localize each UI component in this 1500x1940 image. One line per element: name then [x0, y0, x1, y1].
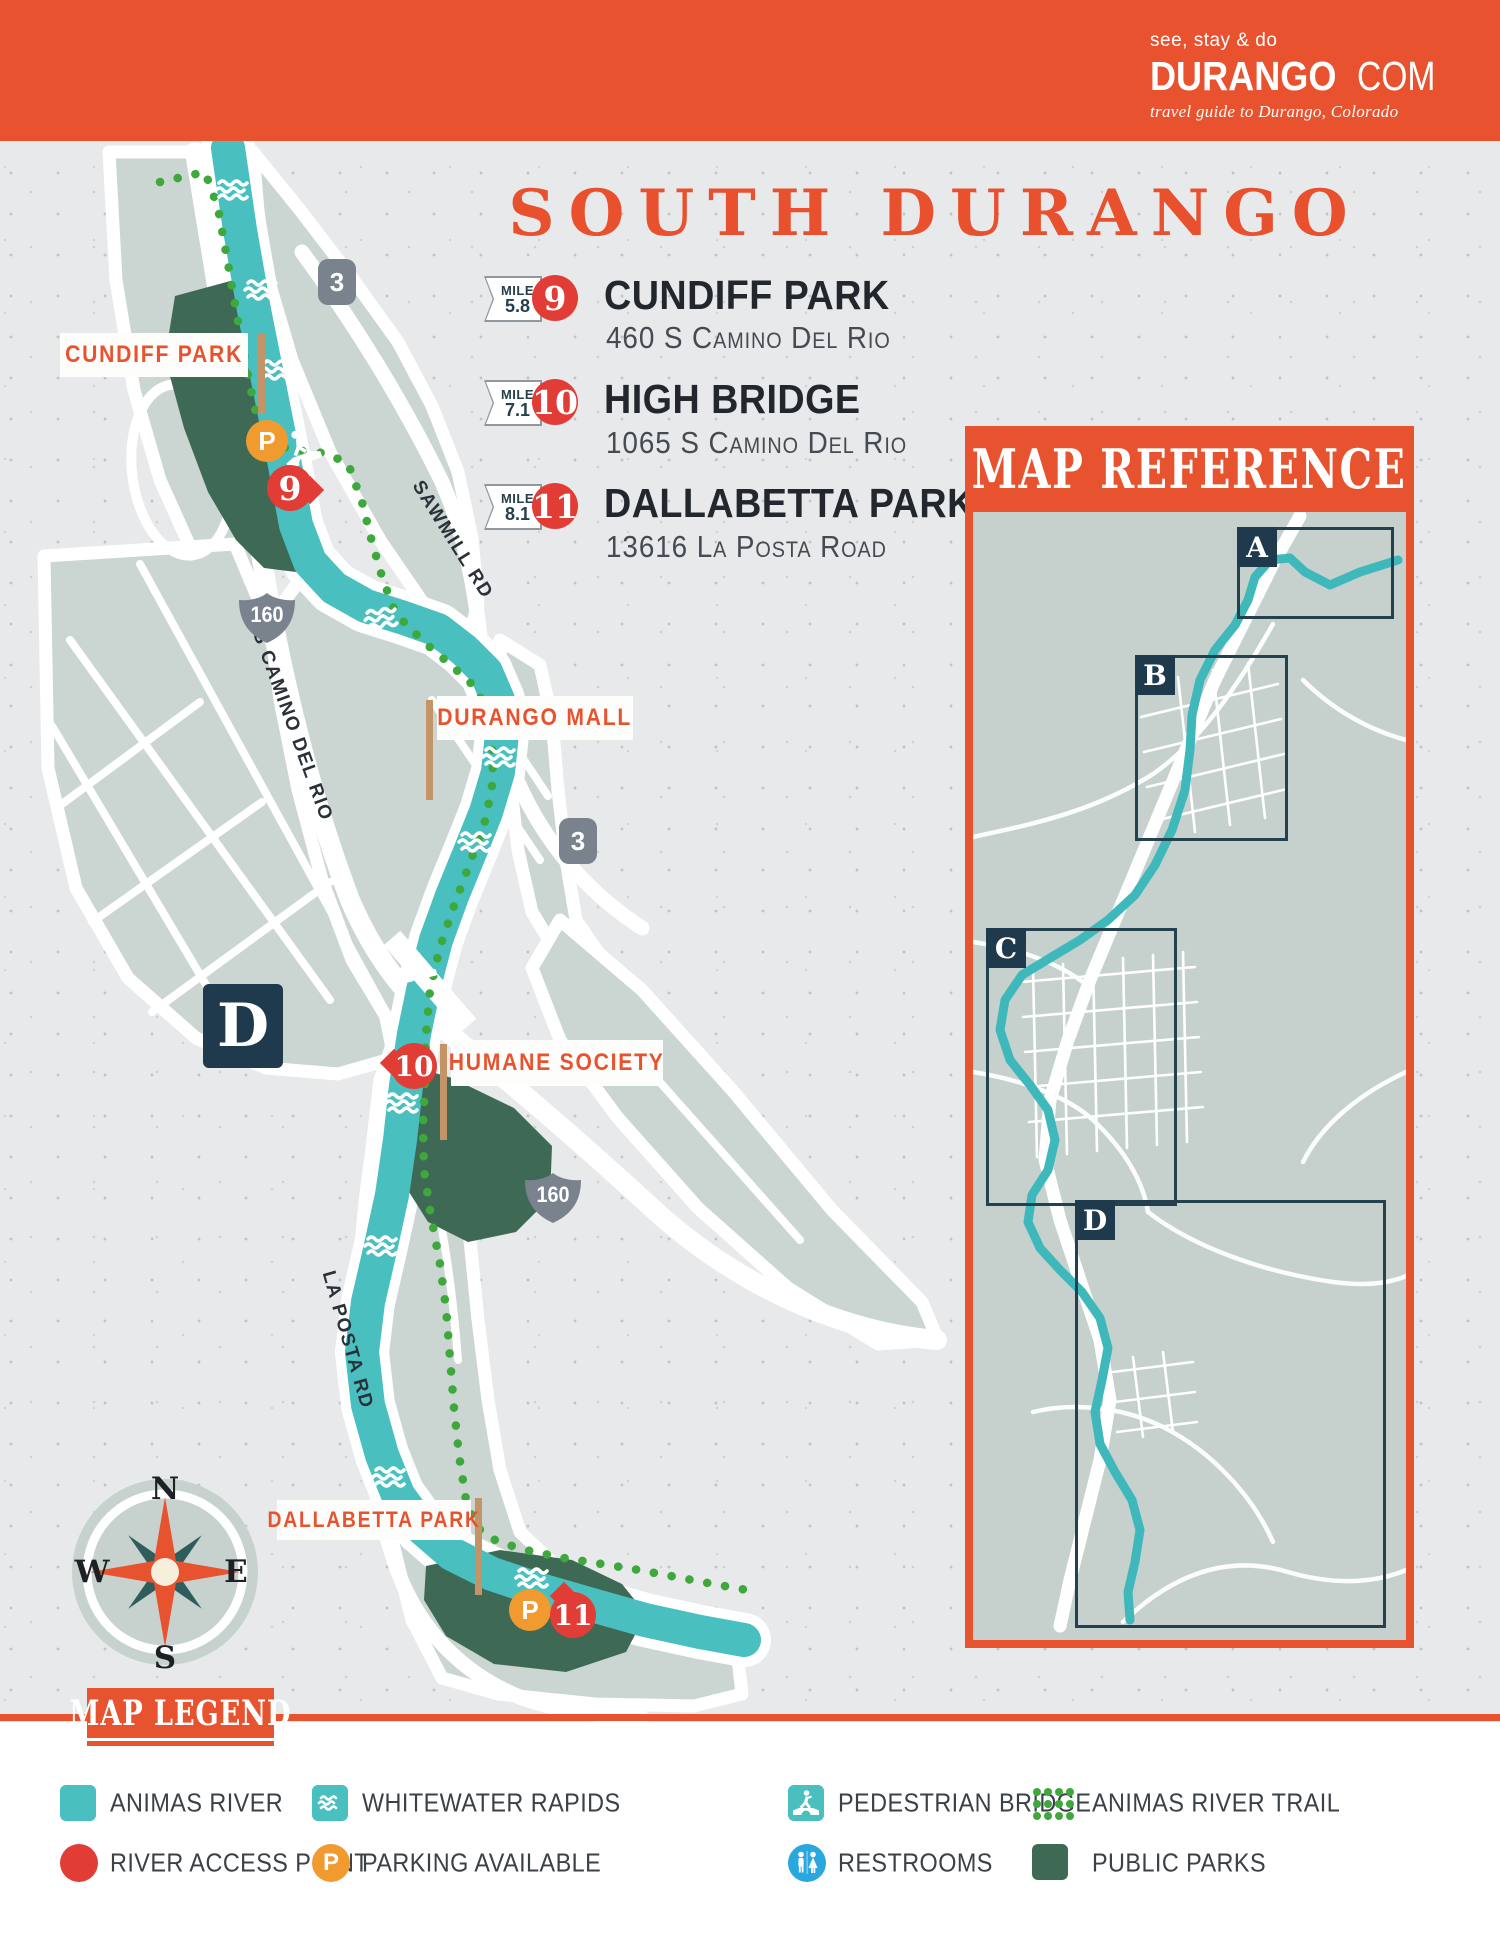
logo-subtitle: travel guide to Durango, Colorado — [1150, 102, 1412, 122]
page: ANIMAS RIVER ACCESS: DURANGO, CO see, st… — [0, 0, 1500, 1940]
map-legend-title: MAP LEGEND — [70, 1693, 292, 1741]
shield-number: 160 — [524, 1182, 582, 1208]
map-access-marker-11: 11 — [550, 1592, 596, 1638]
access-address-11: 13616 La Posta Road — [606, 529, 887, 565]
legend-label: PUBLIC PARKS — [1092, 1848, 1266, 1879]
restrooms-icon — [788, 1844, 826, 1882]
parking-available-icon: P — [312, 1844, 350, 1882]
map-access-marker-10: 10 — [391, 1043, 437, 1089]
access-address-9: 460 S Camino Del Rio — [606, 320, 891, 356]
legend-label: WHITEWATER RAPIDS — [362, 1788, 621, 1819]
label-durango-mall: DURANGO MALL — [437, 696, 633, 740]
map-access-marker-9: 9 — [267, 465, 313, 511]
access-name-11: DALLABETTA PARK — [604, 480, 975, 527]
river-access-point-icon — [60, 1844, 98, 1882]
legend-label: ANIMAS RIVER — [110, 1788, 283, 1819]
label-text: DURANGO MALL — [438, 704, 633, 732]
reference-box-letter: B — [1135, 655, 1175, 695]
shield-number: 160 — [238, 602, 296, 628]
compass-s: S — [154, 1640, 176, 1676]
map-reference-map: A B C D — [973, 512, 1406, 1640]
parking-marker: P — [246, 420, 288, 462]
mile-word: MILE — [501, 388, 534, 401]
route-160-shield: 160 — [235, 590, 299, 646]
legend-label: PARKING AVAILABLE — [362, 1848, 601, 1879]
access-address-10: 1065 S Camino Del Rio — [606, 425, 907, 461]
humane-society-pointer — [440, 1044, 447, 1140]
legend-label: ANIMAS RIVER TRAIL — [1092, 1788, 1340, 1819]
access-badge-11: 11 — [532, 483, 578, 529]
route-160-shield: 160 — [521, 1170, 585, 1226]
map-reference-panel: MAP REFERENCE — [965, 426, 1414, 1648]
legend-label: RESTROOMS — [838, 1848, 993, 1879]
cundiff-pointer — [258, 334, 265, 414]
mile-word: MILE — [501, 284, 534, 297]
mile-word: MILE — [501, 492, 534, 505]
label-text: HUMANE SOCIETY — [449, 1049, 665, 1077]
reference-box-letter: C — [986, 928, 1026, 968]
durango-mall-pointer — [426, 700, 433, 800]
compass-w: W — [75, 1554, 110, 1590]
logo-tld: COM — [1357, 53, 1435, 100]
compass-n: N — [151, 1471, 179, 1507]
mile-value: 5.8 — [505, 297, 530, 315]
map-reference-title: MAP REFERENCE — [972, 437, 1407, 501]
map-reference-header: MAP REFERENCE — [965, 426, 1414, 512]
access-badge-10: 10 — [532, 379, 578, 425]
label-cundiff-park: CUNDIFF PARK — [60, 333, 248, 377]
reference-box-letter: A — [1237, 527, 1277, 567]
pedestrian-bridge-icon — [788, 1785, 824, 1821]
whitewater-rapids-icon — [312, 1785, 348, 1821]
access-name-9: CUNDIFF PARK — [604, 272, 890, 319]
parking-marker: P — [509, 1589, 551, 1631]
route-3-shield: 3 — [559, 818, 597, 864]
reference-box-letter: D — [1075, 1200, 1115, 1240]
label-text: DALLABETTA PARK — [267, 1507, 480, 1533]
logo-brand: DURANGO — [1150, 53, 1336, 100]
mile-value: 8.1 — [505, 505, 530, 523]
logo-tagline: see, stay & do — [1150, 30, 1412, 52]
reference-box-a: A — [1237, 527, 1394, 619]
animas-river-swatch-icon — [60, 1785, 96, 1821]
legend-strip — [0, 1722, 1500, 1940]
label-humane-society: HUMANE SOCIETY — [451, 1040, 663, 1086]
public-parks-swatch-icon — [1032, 1844, 1068, 1880]
animas-river-trail-icon — [1032, 1787, 1078, 1821]
mile-value: 7.1 — [505, 401, 530, 419]
access-name-10: HIGH BRIDGE — [604, 376, 861, 423]
compass-e: E — [224, 1554, 248, 1590]
section-title: SOUTH DURANGO — [470, 176, 1400, 251]
label-text: CUNDIFF PARK — [65, 341, 243, 369]
reference-box-d: D — [1075, 1200, 1386, 1628]
reference-box-c: C — [986, 928, 1177, 1206]
reference-box-b: B — [1135, 655, 1288, 841]
route-3-shield: 3 — [318, 259, 356, 305]
access-badge-9: 9 — [532, 275, 578, 321]
map-section-letter: D — [203, 984, 283, 1068]
map-legend-badge: MAP LEGEND — [87, 1688, 274, 1746]
durango-com-logo: see, stay & do DURANGO COM travel guide … — [1150, 30, 1412, 122]
label-dallabetta-park: DALLABETTA PARK — [277, 1500, 471, 1540]
